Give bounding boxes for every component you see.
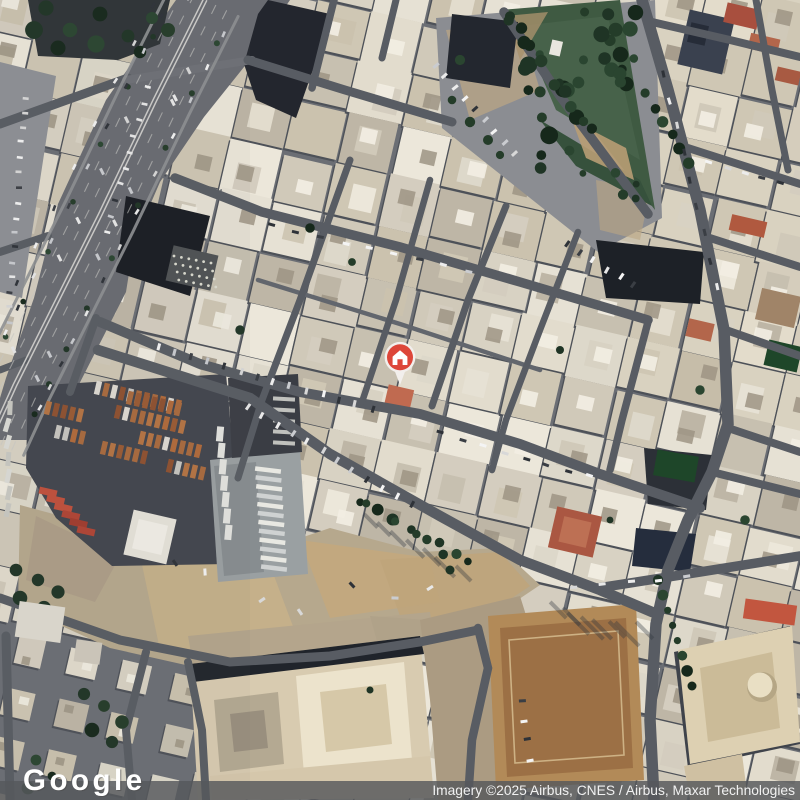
svg-text:Imagery ©2025 Airbus, CNES / A: Imagery ©2025 Airbus, CNES / Airbus, Max…: [432, 783, 795, 798]
svg-text:Google: Google: [23, 764, 146, 797]
